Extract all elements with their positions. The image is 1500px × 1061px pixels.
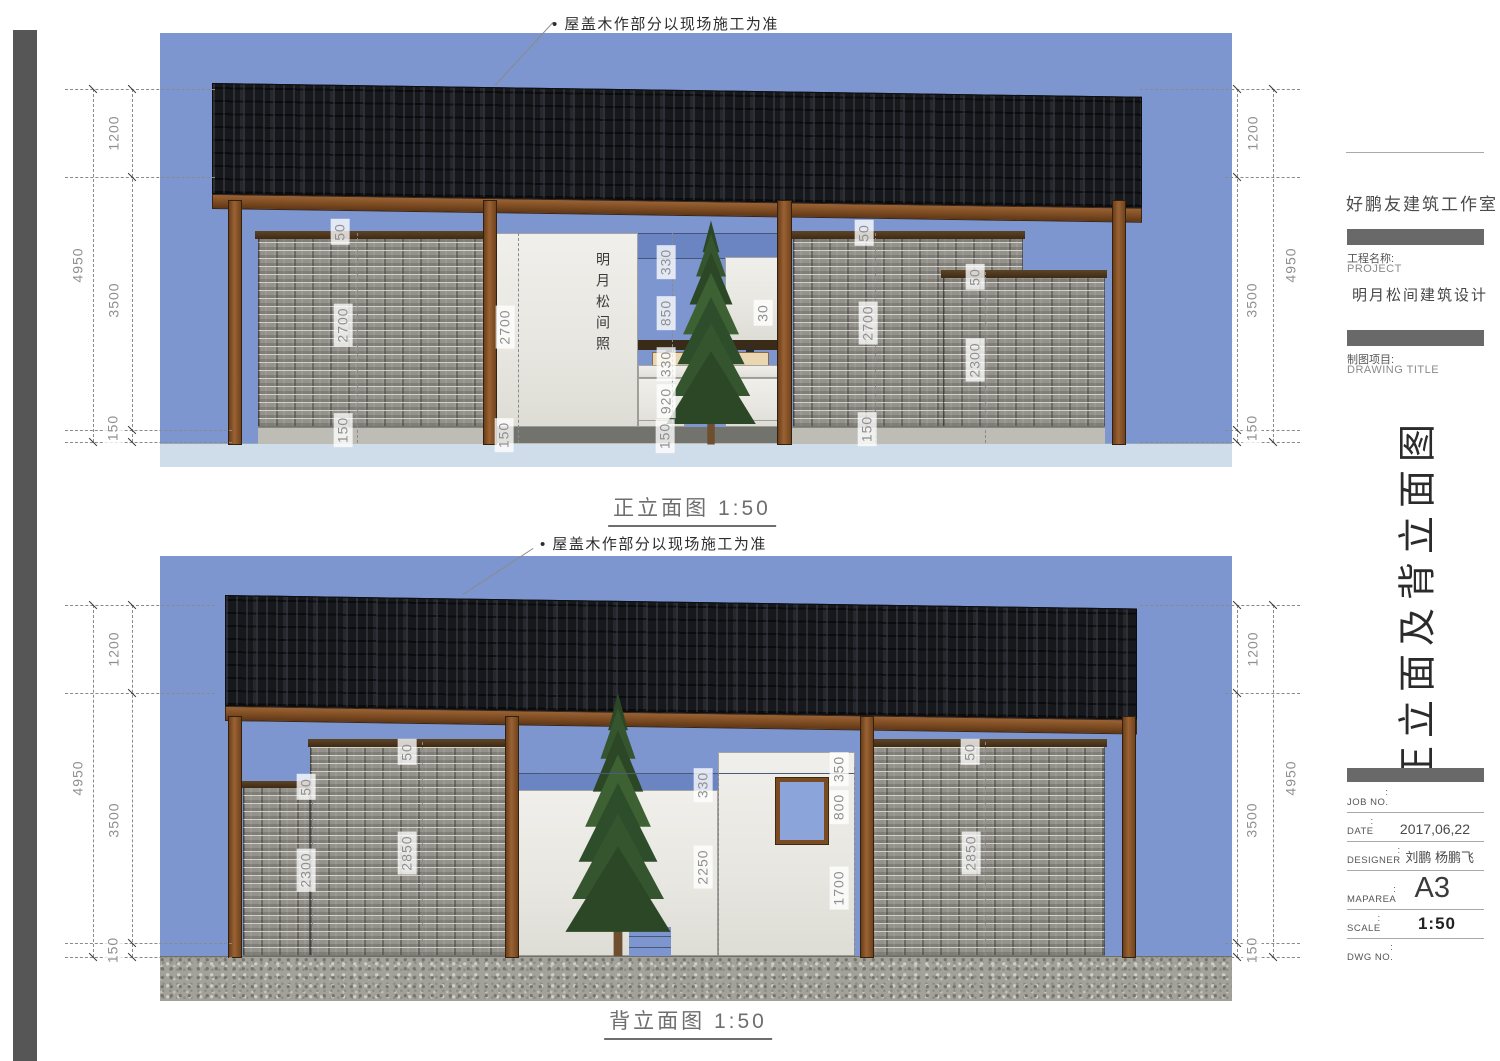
titleblock-row-scale: :SCALE 1:50 bbox=[1347, 912, 1484, 934]
project-name: 明月松间建筑设计 bbox=[1352, 284, 1488, 305]
page-edge-bar bbox=[13, 30, 37, 1061]
row-value: 2017,06,22 bbox=[1400, 821, 1470, 837]
pine-tree bbox=[548, 693, 688, 956]
dim-line bbox=[518, 233, 519, 443]
colon: : bbox=[1390, 944, 1393, 952]
dim-line bbox=[93, 89, 94, 442]
dim-label: 330 bbox=[657, 347, 676, 381]
titleblock-rule bbox=[1347, 938, 1484, 939]
dim-line bbox=[65, 177, 215, 178]
titleblock-bar bbox=[1347, 229, 1484, 245]
titleblock-bar bbox=[1347, 768, 1484, 782]
dim-label: 330 bbox=[657, 245, 676, 279]
dim-line bbox=[357, 233, 358, 443]
dim-label: 50 bbox=[331, 219, 350, 245]
row-label: :JOB NO. bbox=[1347, 789, 1389, 808]
dim-label: 800 bbox=[830, 790, 849, 824]
colon: : bbox=[1397, 847, 1400, 855]
row-value: A3 bbox=[1415, 872, 1450, 905]
dim-label: 2700 bbox=[496, 305, 515, 348]
titleblock-rule bbox=[1347, 870, 1484, 871]
titleblock-row-dwgno: :DWG NO. bbox=[1347, 941, 1484, 963]
dim-label: 2300 bbox=[966, 338, 985, 381]
dim-label: 3500 bbox=[1243, 278, 1262, 321]
row-label: :MAPAREA bbox=[1347, 886, 1396, 905]
wood-post bbox=[1122, 716, 1136, 958]
titleblock-row-maparea: :MAPAREA A3 bbox=[1347, 873, 1484, 905]
dim-line bbox=[65, 957, 232, 958]
dim-line bbox=[718, 773, 719, 956]
dim-label: 2250 bbox=[694, 845, 713, 888]
roof-annotation: • 屋盖木作部分以现场施工为准 bbox=[540, 533, 767, 554]
dim-line bbox=[93, 605, 94, 957]
front-elevation-title: 正立面图 1:50 bbox=[608, 492, 776, 527]
wood-post bbox=[228, 716, 242, 958]
dim-line bbox=[422, 742, 423, 956]
dim-label: 2850 bbox=[398, 831, 417, 874]
dim-line bbox=[1140, 605, 1300, 606]
titleblock-rule bbox=[1347, 909, 1484, 910]
dim-label: 2700 bbox=[334, 303, 353, 346]
wall-coping bbox=[866, 739, 1107, 747]
dim-line bbox=[65, 943, 232, 944]
dim-line bbox=[132, 605, 133, 957]
row-label: :DATE bbox=[1347, 818, 1374, 837]
dim-line bbox=[1237, 605, 1238, 957]
dim-label: 3500 bbox=[1243, 798, 1262, 841]
colon: : bbox=[1385, 789, 1388, 797]
back-elevation-title: 背立面图 1:50 bbox=[604, 1005, 772, 1040]
back-elevation-ground bbox=[160, 956, 1232, 1001]
dim-label: 50 bbox=[966, 264, 985, 290]
project-label-en: PROJECT bbox=[1347, 263, 1402, 275]
dim-label: 920 bbox=[657, 384, 676, 418]
dim-line bbox=[985, 272, 986, 443]
dim-label: 4950 bbox=[1282, 243, 1301, 286]
wood-post bbox=[1112, 200, 1126, 445]
dim-line bbox=[65, 89, 215, 90]
dim-label: 2700 bbox=[859, 301, 878, 344]
wall-coping bbox=[255, 231, 491, 239]
roof bbox=[212, 83, 1140, 221]
dim-label: 150 bbox=[334, 413, 353, 447]
titleblock-row-designer: :DESIGNER 刘鹏 杨鹏飞 bbox=[1347, 844, 1484, 866]
dim-label: 1700 bbox=[830, 866, 849, 909]
dim-label: 350 bbox=[830, 752, 849, 786]
dim-label: 2300 bbox=[297, 848, 316, 891]
dim-label: 2850 bbox=[962, 831, 981, 874]
studio-name: 好鹏友建筑工作室 bbox=[1346, 190, 1498, 215]
dim-label: 3500 bbox=[105, 798, 124, 841]
titleblock-row-date: :DATE 2017,06,22 bbox=[1347, 815, 1484, 837]
dim-label: 150 bbox=[104, 411, 123, 445]
dim-line bbox=[1140, 957, 1300, 958]
dim-label: 1200 bbox=[105, 111, 124, 154]
brick-wall bbox=[868, 746, 1105, 956]
dim-line bbox=[1140, 89, 1300, 90]
wood-post bbox=[860, 716, 874, 958]
brick-wall bbox=[258, 238, 488, 427]
dim-line bbox=[985, 742, 986, 956]
dim-line bbox=[65, 442, 232, 443]
roof-annotation: • 屋盖木作部分以现场施工为准 bbox=[552, 13, 779, 34]
dim-label: 50 bbox=[961, 739, 980, 765]
front-elevation-ground bbox=[160, 443, 1232, 467]
wood-post bbox=[228, 200, 242, 445]
dim-line bbox=[1140, 442, 1300, 443]
colon: : bbox=[1378, 915, 1381, 923]
dim-label: 3500 bbox=[105, 278, 124, 321]
dim-label: 150 bbox=[858, 412, 877, 446]
wall-coping bbox=[791, 231, 1025, 239]
titleblock-rule bbox=[1346, 152, 1484, 153]
dim-label: 150 bbox=[495, 418, 514, 452]
dim-label: 50 bbox=[398, 739, 417, 765]
dim-line bbox=[1237, 89, 1238, 442]
row-label: :DWG NO. bbox=[1347, 944, 1393, 963]
dim-label: 150 bbox=[104, 933, 123, 967]
drawing-sheet: 明月松间照 • 屋盖木作部分以现场施工为准 bbox=[0, 0, 1500, 1061]
window bbox=[776, 778, 828, 844]
sheet-title: 正立面及背立面图 bbox=[1387, 416, 1442, 784]
wall-inscription: 明月松间照 bbox=[596, 252, 610, 357]
wood-post bbox=[505, 716, 519, 958]
dim-line bbox=[132, 89, 133, 442]
drawing-label-en: DRAWING TITLE bbox=[1347, 364, 1439, 376]
dim-label: 850 bbox=[657, 296, 676, 330]
dim-label: 50 bbox=[297, 774, 316, 800]
dim-label: 150 bbox=[1243, 411, 1262, 445]
colon: : bbox=[1393, 886, 1396, 894]
dim-label: 4950 bbox=[69, 243, 88, 286]
white-wall bbox=[495, 233, 638, 427]
dim-label: 330 bbox=[694, 768, 713, 802]
titleblock-rule bbox=[1347, 812, 1484, 813]
dim-label: 1200 bbox=[105, 627, 124, 670]
dim-label: 1200 bbox=[1244, 627, 1263, 670]
row-label: :DESIGNER bbox=[1347, 847, 1401, 866]
dim-line bbox=[1273, 89, 1274, 442]
dim-label: 1200 bbox=[1244, 111, 1263, 154]
titleblock-rule bbox=[1347, 841, 1484, 842]
dim-label: 50 bbox=[855, 220, 874, 246]
dim-line bbox=[854, 767, 855, 956]
dim-line bbox=[1273, 605, 1274, 957]
row-value: 刘鹏 杨鹏飞 bbox=[1405, 847, 1474, 866]
wood-post bbox=[777, 200, 792, 445]
row-value: 1:50 bbox=[1418, 914, 1456, 934]
dim-line bbox=[65, 605, 215, 606]
titleblock-row-jobno: :JOB NO. bbox=[1347, 786, 1484, 808]
dim-line bbox=[65, 430, 232, 431]
roof-tiles bbox=[212, 83, 1142, 208]
titleblock-bar bbox=[1347, 330, 1484, 346]
row-label: :SCALE bbox=[1347, 915, 1381, 934]
colon: : bbox=[1371, 818, 1374, 826]
dim-line bbox=[65, 693, 215, 694]
dim-label: 30 bbox=[754, 300, 773, 326]
dim-label: 150 bbox=[656, 419, 675, 453]
dim-label: 4950 bbox=[69, 756, 88, 799]
dim-label: 150 bbox=[1243, 933, 1262, 967]
dim-label: 4950 bbox=[1282, 756, 1301, 799]
